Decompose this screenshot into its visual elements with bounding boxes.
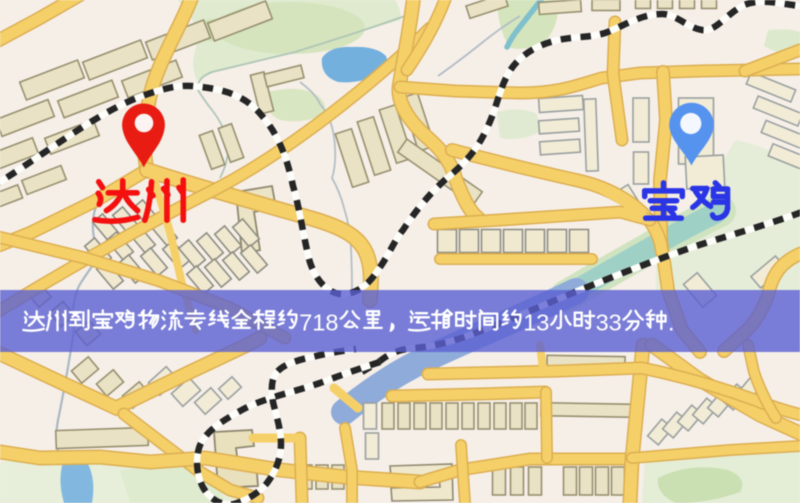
svg-text:33: 33 — [596, 310, 622, 336]
svg-text:718: 718 — [299, 310, 338, 336]
svg-text:.: . — [668, 310, 675, 337]
svg-text:13: 13 — [523, 310, 549, 336]
